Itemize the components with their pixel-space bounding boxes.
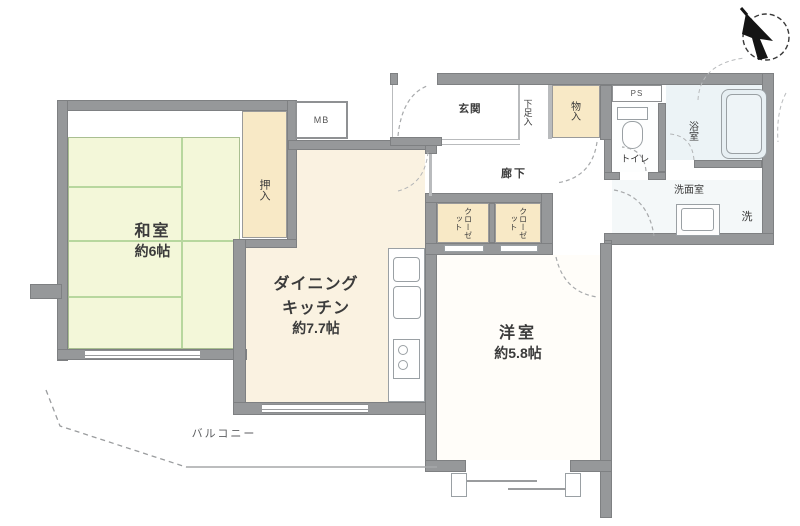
wall xyxy=(57,100,68,361)
label-balcony: バルコニー xyxy=(182,425,266,441)
window xyxy=(262,404,368,413)
porch-edge-line xyxy=(392,85,393,137)
label-genkan: 玄関 xyxy=(448,100,492,116)
kitchen-sink xyxy=(393,286,421,319)
stove-burner xyxy=(398,345,408,355)
partition-line xyxy=(518,85,520,139)
wall xyxy=(425,197,437,472)
dk-size: 約7.7帖 xyxy=(292,318,339,338)
balcony-door-post xyxy=(565,473,581,497)
washitsu-alcove-floor xyxy=(68,111,240,137)
label-bath: 浴室 xyxy=(684,110,700,152)
label-toilet: トイレ xyxy=(612,151,658,165)
washitsu-size: 約6帖 xyxy=(135,241,171,261)
wall xyxy=(425,193,553,203)
label-oshiire: 押入 xyxy=(254,158,274,222)
stove-burner xyxy=(398,360,408,370)
wall xyxy=(425,460,466,472)
yoshitsu-name: 洋室 xyxy=(499,319,537,343)
dk-door-line xyxy=(429,154,432,196)
door-arc-entrance xyxy=(398,86,427,136)
washitsu-name: 和室 xyxy=(134,217,170,241)
dk-line2: キッチン xyxy=(282,294,350,318)
bathtub-inner xyxy=(726,94,762,154)
wall xyxy=(604,172,620,180)
balcony-boundary-dashed xyxy=(46,390,186,467)
door-arc-monoire xyxy=(556,142,597,183)
wall-stub-exterior xyxy=(30,284,62,299)
wall xyxy=(600,243,612,518)
wall xyxy=(437,73,774,85)
label-laundry: 洗 xyxy=(738,208,756,224)
yoshitsu-size: 約5.8帖 xyxy=(494,343,541,363)
kitchen-stove xyxy=(393,339,420,379)
balcony-sliding-door-line xyxy=(508,488,566,490)
compass-north-icon xyxy=(741,8,789,60)
label-hallway: 廊下 xyxy=(493,165,535,181)
meter-box-label: MB xyxy=(314,115,330,125)
room-label-washitsu: 和室 約6帖 xyxy=(95,213,210,265)
label-shoes: 下足入 xyxy=(521,86,535,138)
wall xyxy=(57,100,297,111)
tatami-line xyxy=(69,186,182,188)
wall xyxy=(570,460,612,472)
pipe-space-box: PS xyxy=(612,85,662,102)
door-arc-exterior xyxy=(778,93,786,142)
meter-box: MB xyxy=(295,101,348,139)
floor-plan: MB PS xyxy=(0,0,800,526)
tatami-line xyxy=(69,296,182,298)
closet-door-mark xyxy=(444,245,484,252)
genkan-step-line xyxy=(442,139,520,140)
dk-line1: ダイニング xyxy=(273,270,358,294)
pipe-space-label: PS xyxy=(631,89,644,98)
label-washroom: 洗面室 xyxy=(664,181,714,195)
window xyxy=(85,350,200,359)
wall xyxy=(648,172,666,180)
genkan-step-line xyxy=(442,144,520,145)
label-closet-left: クローゼット xyxy=(446,206,480,240)
balcony-sliding-door-line xyxy=(467,480,537,482)
wall xyxy=(390,137,442,146)
toilet-bowl xyxy=(622,121,643,149)
wall xyxy=(600,85,612,140)
room-label-yoshitsu: 洋室 約5.8帖 xyxy=(448,316,588,366)
closet-door-mark xyxy=(500,245,538,252)
label-monoire: 物入 xyxy=(566,88,582,134)
wall xyxy=(390,73,398,85)
toilet-tank xyxy=(617,107,648,120)
washing-machine-inner xyxy=(681,208,714,231)
label-closet-right: クローゼット xyxy=(502,206,534,240)
wall xyxy=(658,103,666,172)
wall xyxy=(694,160,762,168)
kitchen-sink xyxy=(393,257,420,282)
room-label-dk: ダイニング キッチン 約7.7帖 xyxy=(240,262,392,346)
balcony-door-post xyxy=(451,473,467,497)
